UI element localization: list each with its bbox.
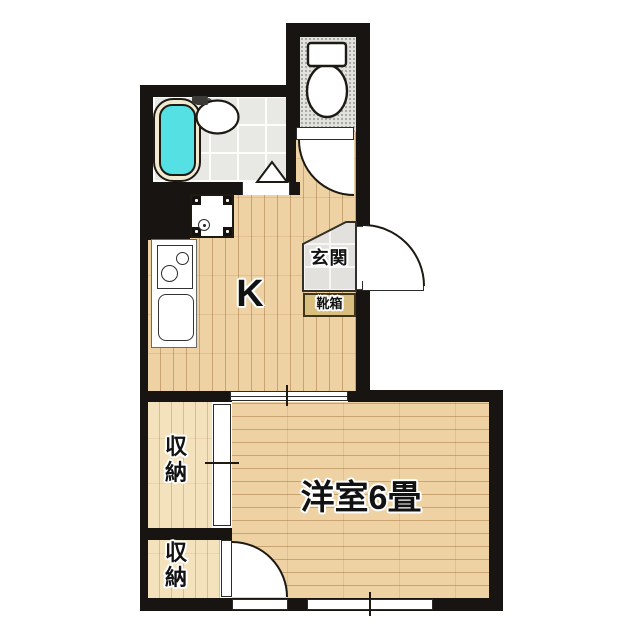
shoe-box-label: 靴箱 xyxy=(303,296,356,312)
washer-drain-dot xyxy=(203,224,206,227)
wall-right-lower xyxy=(489,390,503,611)
bathroom-doorway-gap xyxy=(242,182,290,195)
wall-bath-right xyxy=(286,85,296,195)
front-door-swing-arc-icon xyxy=(363,225,424,286)
front-door-swing xyxy=(363,225,424,286)
entrance-label: 玄関 xyxy=(303,247,356,269)
bath-faucet-knob-icon xyxy=(205,98,212,105)
front-door-leaf xyxy=(362,281,424,291)
wall-bath-top xyxy=(140,85,300,97)
storage-upper-label: 収納 xyxy=(163,434,189,486)
wall-right-upper xyxy=(356,23,370,402)
storage-lower-label: 収納 xyxy=(163,541,189,590)
sliding-door-tick xyxy=(286,385,288,406)
wall-washer-nook xyxy=(140,195,190,240)
wall-room-top xyxy=(356,390,503,402)
storage-upper-door-tick xyxy=(205,462,239,464)
toilet-door-leaf xyxy=(296,127,354,140)
kitchen-sink-icon xyxy=(158,294,194,341)
washer-pan-bracket-icon xyxy=(223,227,232,236)
storage-lower-door-leaf xyxy=(221,540,232,597)
bathtub-water xyxy=(159,104,196,176)
washer-pan-bracket-icon xyxy=(223,196,232,205)
washer-pan-bracket-icon xyxy=(192,196,201,205)
storage-lower-door-open xyxy=(232,599,288,610)
stove-burner-large-icon xyxy=(161,265,178,282)
storage-upper-door xyxy=(213,404,231,526)
sliding-door-center-line xyxy=(230,396,348,397)
wall-kitchen-bottom-left xyxy=(140,391,232,402)
stove-burner-small-icon xyxy=(176,252,189,265)
kitchen-label: K xyxy=(222,272,278,316)
wall-closet-divider xyxy=(140,528,232,540)
toilet-room-floor xyxy=(300,37,356,132)
window-tick xyxy=(369,592,371,616)
main-room-label: 洋室6畳 xyxy=(280,477,442,519)
floor-plan: K 玄関 靴箱 収納 収納 洋室6畳 xyxy=(0,0,640,640)
